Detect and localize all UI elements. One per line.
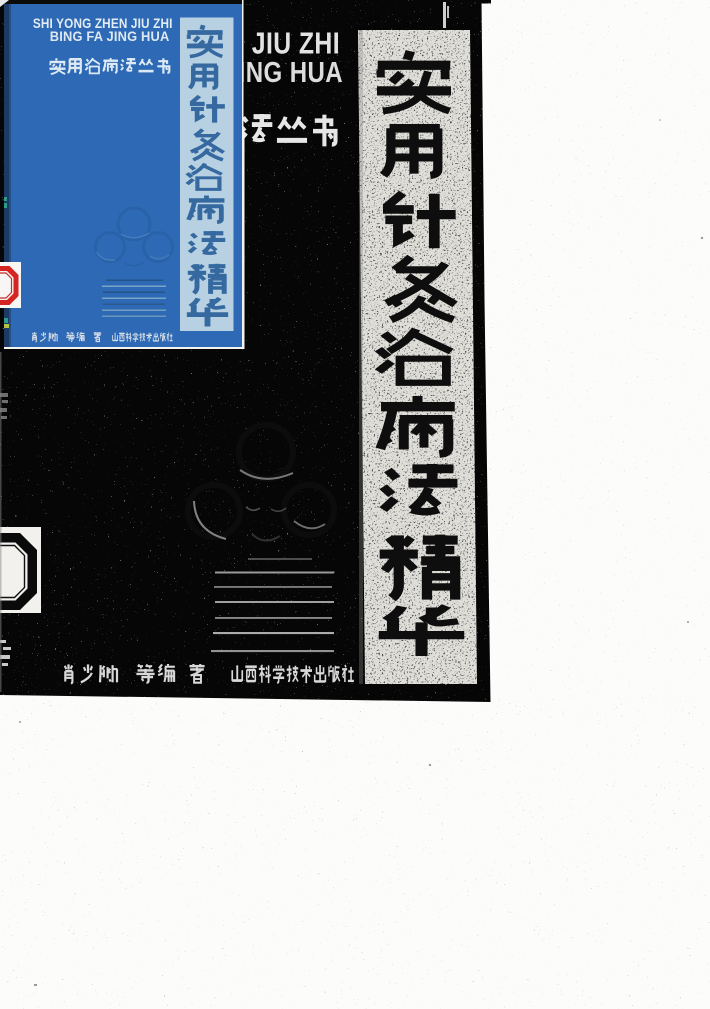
svg-text:BING FA JING HUA: BING FA JING HUA: [50, 29, 170, 45]
